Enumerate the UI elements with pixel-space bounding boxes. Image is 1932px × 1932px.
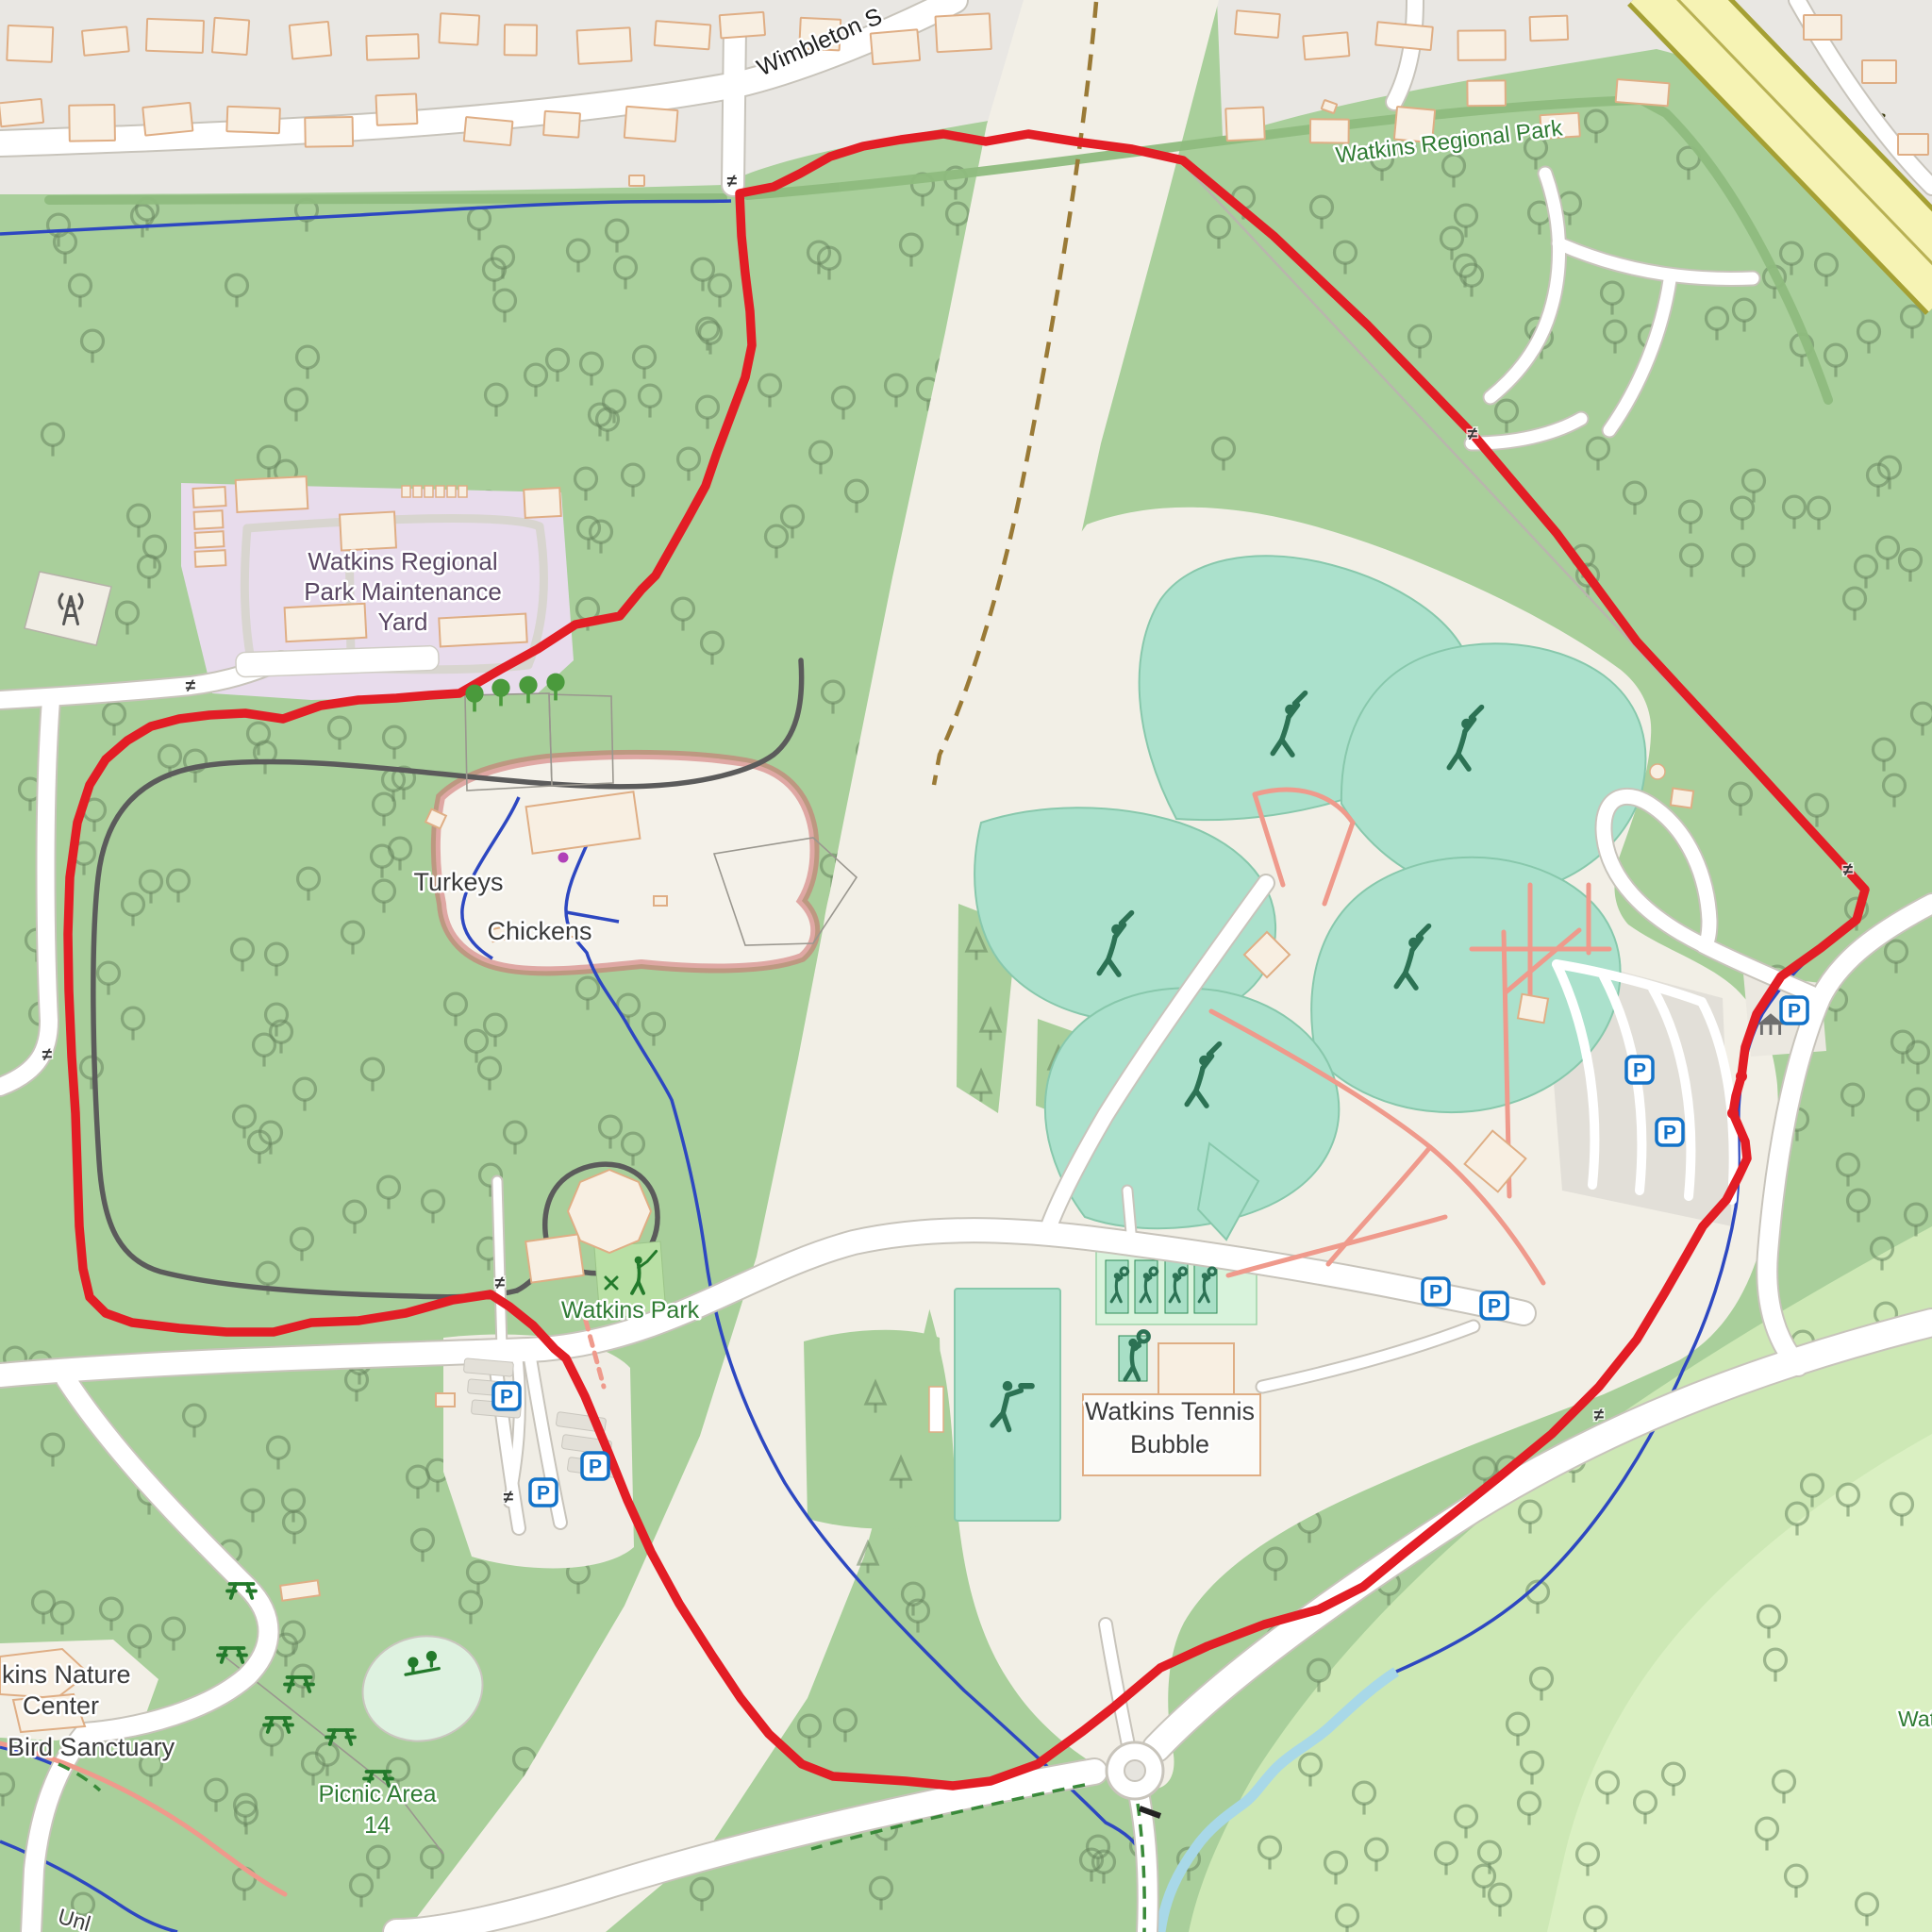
map-label-picnic-line2: 14 — [364, 1812, 391, 1839]
gate-icon: ≠ — [1594, 1406, 1605, 1425]
house — [655, 21, 711, 49]
roundabout — [1107, 1742, 1163, 1799]
octagon-building — [568, 1170, 651, 1253]
building — [285, 604, 367, 641]
map-label-yard-line2: Park Maintenance — [304, 577, 502, 606]
svg-text:P: P — [1663, 1123, 1676, 1144]
house — [464, 117, 513, 145]
svg-text:P: P — [1488, 1296, 1501, 1318]
parking-icon: P — [1626, 1057, 1653, 1083]
gate-icon: ≠ — [727, 172, 738, 192]
building — [447, 486, 456, 497]
map-label-right-edge-partial: Watk — [1898, 1707, 1932, 1731]
house — [1804, 15, 1841, 40]
svg-text:P: P — [589, 1457, 602, 1478]
map-label-bubble-line2: Bubble — [1130, 1430, 1209, 1458]
parking-icon: P — [1481, 1292, 1507, 1319]
house — [1898, 134, 1928, 155]
building — [413, 486, 422, 497]
parking-icon: P — [1657, 1119, 1683, 1145]
parking-icon: P — [1781, 997, 1807, 1024]
house — [543, 111, 580, 138]
house — [1457, 30, 1505, 60]
gate-icon: ≠ — [1468, 425, 1478, 444]
building — [1518, 994, 1548, 1023]
map-label-nature-line1: kins Nature — [2, 1660, 131, 1689]
svg-text:P: P — [500, 1387, 513, 1408]
house — [1467, 80, 1506, 106]
building — [194, 510, 224, 529]
house — [305, 117, 353, 147]
building — [458, 486, 467, 497]
farm-node — [558, 853, 569, 863]
map-label-chickens: Chickens — [487, 917, 591, 945]
house — [935, 13, 991, 52]
house — [1616, 79, 1670, 106]
house — [290, 22, 332, 59]
building — [402, 486, 410, 497]
svg-text:P: P — [537, 1483, 550, 1505]
map-label-nature-line2: Center — [23, 1691, 99, 1720]
building — [425, 486, 433, 497]
round-building — [1650, 764, 1665, 779]
house — [69, 105, 115, 142]
gate-icon: ≠ — [186, 676, 196, 696]
house — [0, 99, 43, 126]
house — [871, 29, 920, 64]
map-label-picnic-line1: Picnic Area — [318, 1781, 436, 1807]
parking-icon: P — [530, 1479, 557, 1506]
building — [436, 486, 444, 497]
gate-icon: ≠ — [42, 1045, 53, 1065]
house — [142, 103, 192, 136]
building — [1158, 1343, 1234, 1396]
building — [439, 614, 526, 647]
parking-icon: P — [1423, 1278, 1449, 1305]
house — [720, 12, 765, 39]
building — [192, 487, 225, 508]
house — [577, 27, 632, 63]
house — [375, 93, 417, 125]
house — [625, 107, 678, 142]
building — [929, 1387, 943, 1432]
building — [654, 896, 667, 906]
svg-text:P: P — [1788, 1001, 1801, 1023]
building — [1671, 789, 1693, 808]
gate-icon: ≠ — [495, 1274, 506, 1293]
map-canvas[interactable]: ≠≠≠≠≠≠≠≠PPPPPPPP Wimbleton SWatkins Regi… — [0, 0, 1932, 1932]
house — [226, 107, 280, 133]
gate-icon: ≠ — [504, 1488, 514, 1507]
house — [146, 19, 204, 53]
house — [366, 34, 419, 59]
parking-icon: P — [493, 1383, 520, 1409]
parking-icon: P — [582, 1453, 608, 1479]
map-label-bird-sanctuary: Bird Sanctuary — [8, 1733, 175, 1761]
house — [82, 26, 129, 55]
svg-text:P: P — [1633, 1060, 1646, 1082]
building — [195, 550, 226, 567]
building — [525, 1234, 584, 1282]
building — [524, 488, 561, 518]
house — [1225, 108, 1264, 142]
gate-icon: ≠ — [1843, 860, 1854, 880]
house — [1530, 16, 1569, 42]
map-label-bubble-line1: Watkins Tennis — [1085, 1397, 1255, 1425]
house — [1862, 60, 1896, 83]
svg-text:P: P — [1429, 1282, 1442, 1304]
map-label-yard-line3: Yard — [378, 608, 428, 636]
building — [195, 531, 225, 548]
house — [1375, 22, 1433, 50]
building — [340, 512, 396, 551]
house — [1310, 119, 1349, 142]
house — [1235, 10, 1280, 38]
house — [7, 25, 53, 62]
map-label-turkeys: Turkeys — [413, 868, 503, 896]
map-label-yard-line1: Watkins Regional — [308, 547, 497, 575]
house — [629, 175, 644, 186]
building — [436, 1393, 455, 1407]
map-viewport[interactable]: ≠≠≠≠≠≠≠≠PPPPPPPP Wimbleton SWatkins Regi… — [0, 0, 1932, 1932]
map-label-watkins-park: Watkins Park — [561, 1297, 700, 1324]
house — [212, 18, 249, 55]
building — [236, 476, 308, 512]
house — [1303, 32, 1349, 59]
house — [439, 13, 479, 44]
house — [505, 25, 537, 55]
